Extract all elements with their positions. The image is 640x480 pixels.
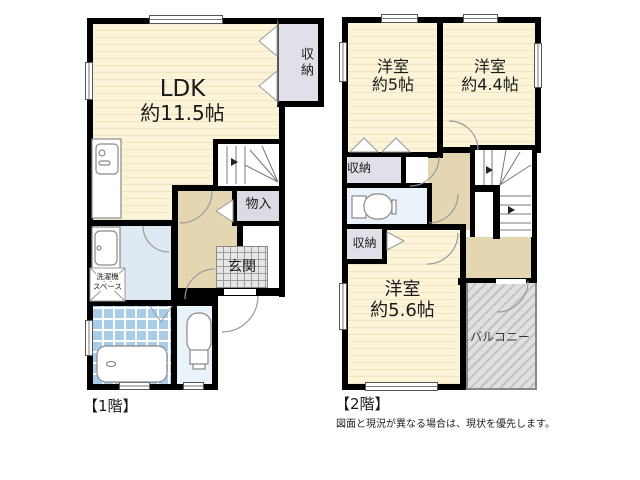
room56-size: 約5.6帖	[350, 301, 455, 322]
wall-segment	[172, 293, 218, 301]
window	[339, 283, 347, 330]
laundry-line1: 洗濯機	[96, 272, 119, 281]
wall-segment	[493, 187, 500, 239]
toilet-2f	[342, 183, 432, 229]
room5-label: 洋室 約5帖	[348, 58, 438, 95]
window	[381, 14, 418, 23]
window	[365, 382, 438, 391]
window	[149, 15, 223, 24]
window	[183, 382, 204, 390]
washroom	[87, 220, 177, 306]
disclaimer-note: 図面と現況が異なる場合は、現状を優先します。	[336, 419, 576, 431]
entrance-label: 玄関	[216, 259, 268, 275]
window	[339, 42, 347, 82]
hallway-2f-landing	[466, 237, 537, 278]
storage-label: 物入	[234, 198, 283, 213]
room44-name: 洋室	[442, 58, 538, 76]
entrance-door-opening	[224, 289, 256, 295]
stairs-1f	[213, 139, 285, 191]
floor2-label: 【2階】	[335, 396, 415, 413]
closet-2f-upper-label: 収納	[347, 162, 401, 176]
toilet-1f	[171, 300, 218, 390]
floor1-label: 【1階】	[83, 398, 163, 415]
window	[85, 320, 93, 356]
room56-name: 洋室	[350, 280, 455, 301]
bathroom	[87, 300, 177, 390]
wall-segment	[531, 237, 537, 284]
laundry-line2: スペース	[93, 282, 122, 291]
balcony-door-opening	[496, 279, 526, 284]
closet-2f-lower-label: 収納	[344, 237, 385, 251]
room5-name: 洋室	[348, 58, 438, 76]
ldk-size: 約11.5帖	[110, 102, 255, 125]
ldk-name: LDK	[110, 76, 255, 102]
window	[119, 382, 150, 390]
room5-size: 約5帖	[348, 76, 438, 94]
room44-label: 洋室 約4.4帖	[442, 58, 538, 95]
closet-1f-label: 収納	[288, 36, 312, 90]
window	[85, 62, 93, 100]
floorplan-canvas: LDK 約11.5帖 収納 物入 玄関 洗濯機 スペース 洋室 約5帖 洋室 約…	[0, 0, 640, 480]
room56-label: 洋室 約5.6帖	[350, 280, 455, 321]
room44-size: 約4.4帖	[442, 76, 538, 94]
window	[463, 14, 498, 23]
laundry-label: 洗濯機 スペース	[88, 272, 127, 292]
balcony-label: バルコニー	[462, 331, 538, 345]
ldk-label: LDK 約11.5帖	[110, 76, 255, 125]
